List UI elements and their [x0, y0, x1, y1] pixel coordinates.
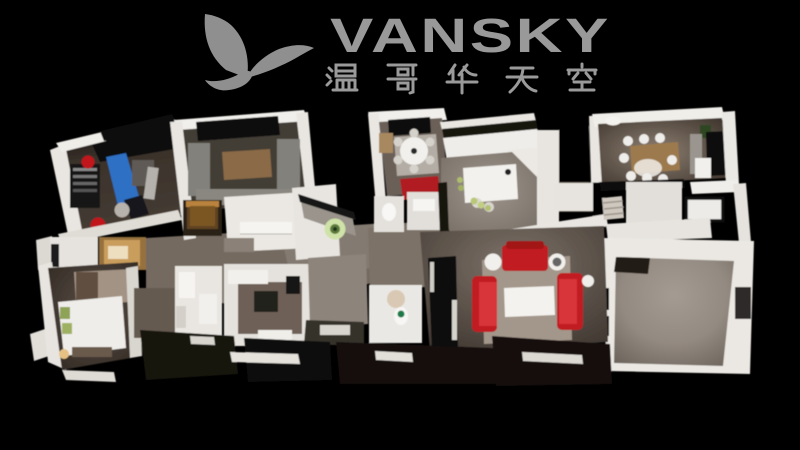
- svg-text:VANSKY: VANSKY: [330, 8, 611, 62]
